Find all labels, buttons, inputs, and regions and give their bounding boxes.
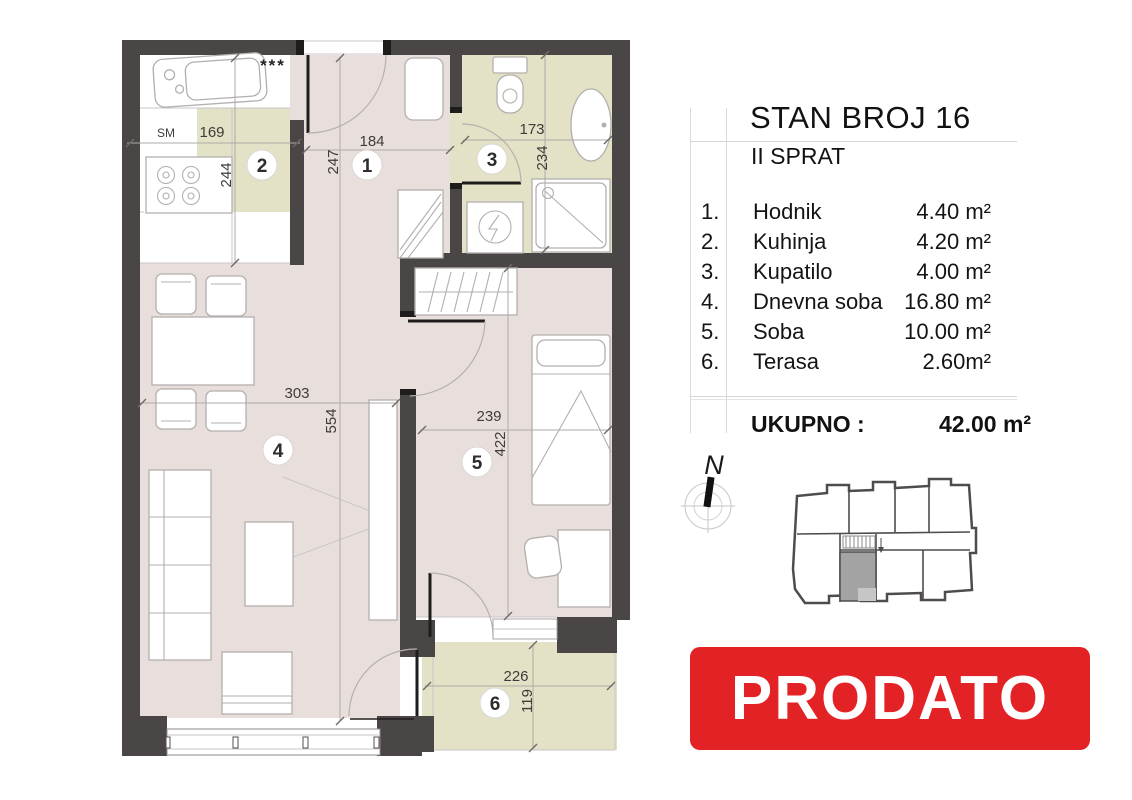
door-jamb (400, 311, 416, 317)
room-name: Kupatilo (753, 259, 916, 285)
svg-text:3: 3 (487, 150, 498, 171)
door-jamb (383, 40, 391, 55)
highlighted-unit-terrace (858, 588, 876, 601)
room-area: 10.00 m² (904, 319, 991, 345)
hall-closet (398, 190, 443, 258)
north-label: N (704, 450, 724, 480)
door-jamb (400, 389, 416, 395)
terrace-slider (493, 619, 557, 639)
room-number: 4. (690, 289, 753, 315)
room-name: Hodnik (753, 199, 916, 225)
total-label: UKUPNO : (751, 411, 897, 438)
dim-hodnik-width: 184 (359, 133, 384, 150)
room-badge-1: 1 (352, 150, 382, 180)
stars-label: *** (260, 56, 286, 75)
room-number: 2. (690, 229, 753, 255)
floor-door-strip (400, 317, 416, 395)
dim-kupatilo-width: 173 (519, 121, 544, 138)
legend-hrule-bottom (690, 396, 1017, 397)
room-list-row: 5. Soba 10.00 m² (690, 319, 991, 349)
washbasin (571, 89, 611, 161)
svg-text:4: 4 (273, 441, 284, 462)
room-name: Soba (753, 319, 904, 345)
room-badge-6: 6 (480, 688, 510, 718)
desk (558, 530, 610, 607)
room-badge-2: 2 (247, 150, 277, 180)
dining-chair (206, 276, 246, 316)
window-mullion (303, 737, 308, 748)
svg-text:2: 2 (257, 156, 268, 177)
window-mullion (374, 737, 379, 748)
dim-soba-width: 239 (476, 408, 501, 425)
total-value: 42.00 m² (939, 411, 1031, 438)
dim-dnevna-width: 303 (284, 385, 309, 402)
shelf-unit (369, 400, 397, 620)
svg-text:5: 5 (472, 453, 483, 474)
room-name: Kuhinja (753, 229, 916, 255)
door-jamb (296, 40, 304, 55)
room-area: 16.80 m² (904, 289, 991, 315)
sofa (149, 470, 211, 660)
dim-soba-height: 422 (492, 431, 509, 456)
dining-chair (156, 389, 196, 429)
dim-terasa-width: 226 (503, 668, 528, 685)
window-mullion (166, 737, 170, 748)
room-list-row: 2. Kuhinja 4.20 m² (690, 229, 991, 259)
room-badge-3: 3 (477, 144, 507, 174)
room-badge-5: 5 (462, 447, 492, 477)
room-area: 4.00 m² (916, 259, 991, 285)
compass: N (676, 444, 748, 536)
wardrobe (415, 268, 517, 315)
legend-hrule-top (690, 141, 1017, 142)
dim-dnevna-height: 554 (323, 408, 340, 433)
room-list-row: 6. Terasa 2.60m² (690, 349, 991, 379)
room-badge-4: 4 (263, 435, 293, 465)
room-number: 3. (690, 259, 753, 285)
sold-banner-text: PRODATO (731, 663, 1049, 734)
dining-chair (156, 274, 196, 314)
kitchen-sink (152, 52, 267, 108)
room-list-row: 1. Hodnik 4.40 m² (690, 199, 991, 229)
room-area: 4.20 m² (916, 229, 991, 255)
dining-chair (206, 391, 246, 431)
room-area: 4.40 m² (916, 199, 991, 225)
door-jamb (450, 183, 462, 189)
window-mullion (233, 737, 238, 748)
room-list-row: 3. Kupatilo 4.00 m² (690, 259, 991, 289)
room-list-row: 4. Dnevna soba 16.80 m² (690, 289, 991, 319)
dining-table (152, 317, 254, 385)
dim-terasa-height: 119 (519, 689, 536, 713)
apartment-brochure: 169 244 184 247 173 234 303 554 239 422 … (0, 0, 1132, 800)
bed (532, 335, 611, 505)
svg-text:6: 6 (490, 694, 501, 715)
room-number: 1. (690, 199, 753, 225)
dim-hodnik-height: 247 (325, 149, 342, 174)
sold-banner: PRODATO (690, 647, 1090, 750)
dim-kuhinja-width: 169 (199, 124, 224, 141)
total-row: UKUPNO : 42.00 m² (751, 411, 1031, 438)
floor-label: II SPRAT (751, 143, 845, 170)
desk-chair (523, 535, 562, 579)
svg-text:1: 1 (362, 156, 373, 177)
room-area: 2.60m² (923, 349, 991, 375)
floor-plan: 169 244 184 247 173 234 303 554 239 422 … (0, 0, 660, 800)
dim-kuhinja-height: 244 (218, 162, 235, 187)
room-number: 5. (690, 319, 753, 345)
room-number: 6. (690, 349, 753, 375)
building-outline (793, 479, 976, 603)
room-name: Dnevna soba (753, 289, 904, 315)
page-title: STAN BROJ 16 (750, 100, 971, 136)
side-table (245, 522, 293, 606)
toilet (493, 57, 527, 113)
door-jamb (450, 107, 462, 113)
legend-hrule-bottom2 (690, 399, 1017, 400)
washing-machine (467, 202, 523, 253)
building-locator (783, 474, 993, 619)
hall-cabinet (405, 58, 443, 120)
room-name: Terasa (753, 349, 923, 375)
room-list: 1. Hodnik 4.40 m² 2. Kuhinja 4.20 m² 3. … (690, 199, 991, 379)
dim-kupatilo-height: 234 (534, 145, 551, 170)
shower (532, 179, 610, 252)
tv-stand (222, 652, 292, 714)
washing-machine-label: SM (157, 126, 175, 140)
